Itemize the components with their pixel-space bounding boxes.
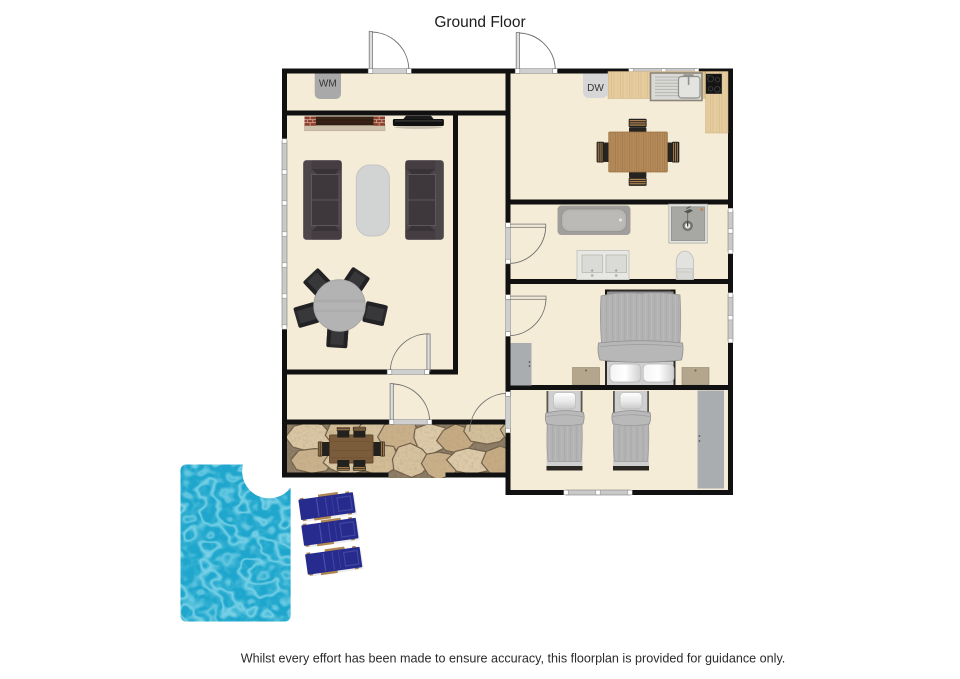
svg-text:DW: DW [587,83,604,94]
svg-text:Ground Floor: Ground Floor [434,14,525,31]
svg-text:WM: WM [319,79,337,90]
svg-text:Whilst every effort has been m: Whilst every effort has been made to ens… [241,652,786,666]
